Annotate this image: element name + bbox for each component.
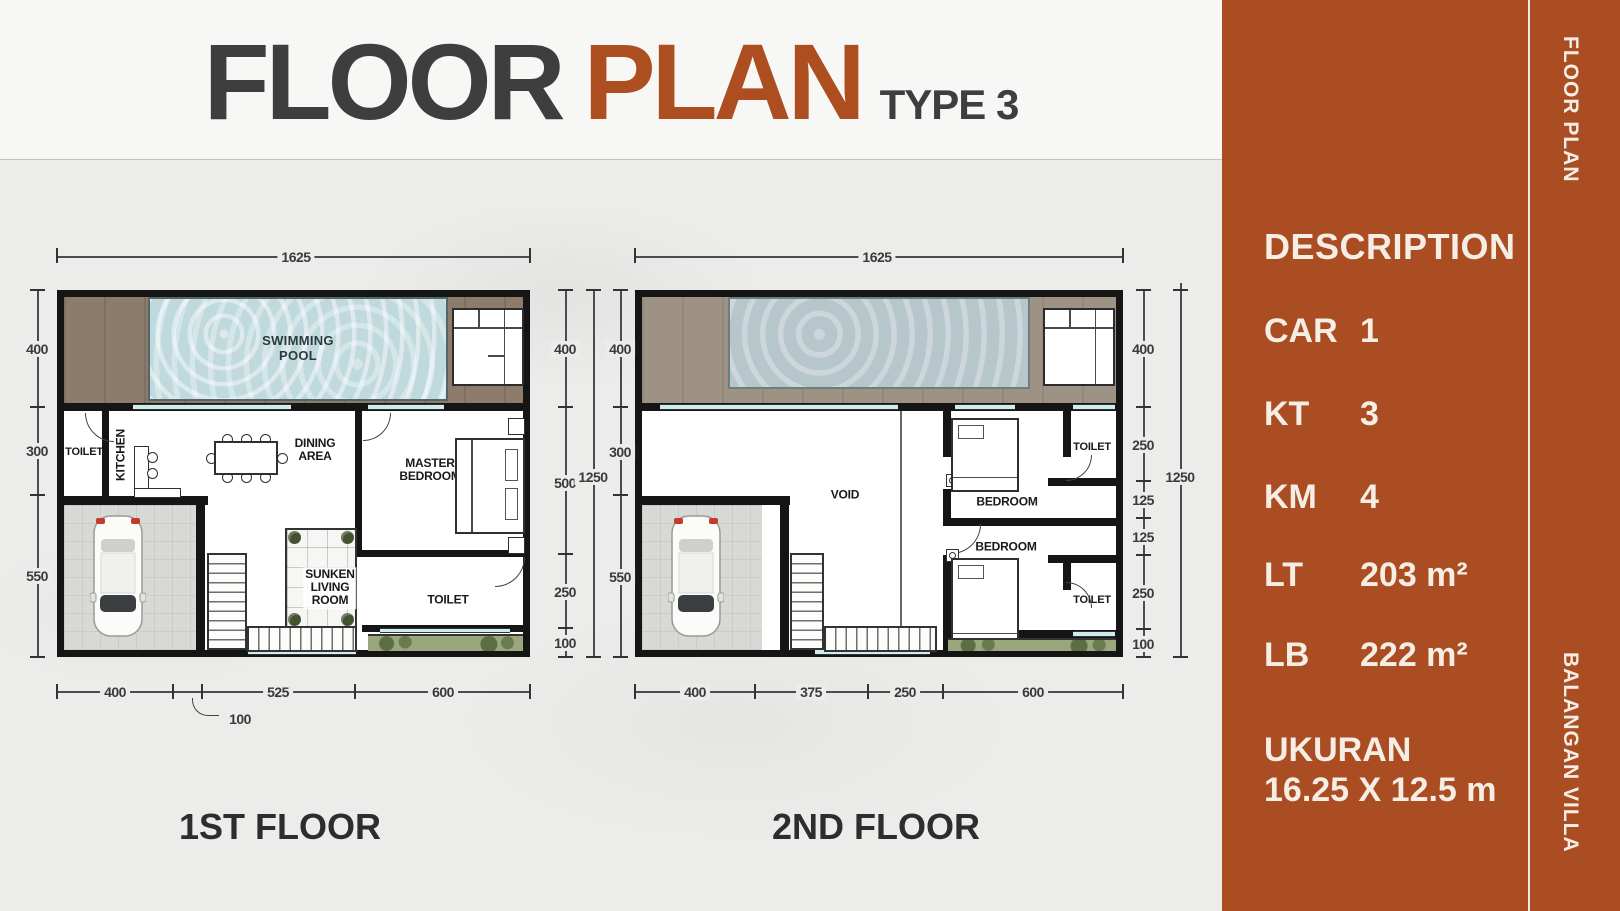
room-label-toilet: TOILET — [427, 593, 468, 606]
bed-fold-line — [953, 477, 1017, 479]
dim-tick — [1122, 248, 1124, 263]
spec-row-kt: KT 3 — [1264, 395, 1524, 435]
dim-label: 250 — [1128, 437, 1158, 453]
dim-tick — [529, 684, 531, 699]
dim-label: 400 — [550, 341, 580, 357]
dim-tick — [586, 289, 601, 291]
plan2-pool-below — [728, 297, 1030, 389]
bed-pillow — [505, 449, 518, 481]
dining-chair — [277, 453, 288, 464]
dim-tick — [942, 684, 944, 699]
dim-label: 1250 — [1161, 469, 1198, 485]
dim-tick — [56, 248, 58, 263]
window-sill — [133, 404, 291, 410]
header: FLOOR PLAN TYPE 3 — [0, 0, 1222, 160]
room-label-bedroom: BEDROOM — [976, 495, 1037, 508]
bed-pillow — [958, 565, 984, 579]
bed — [951, 558, 1019, 648]
dim-tick — [558, 553, 573, 555]
bed-pillow — [505, 488, 518, 520]
room-label-dining: DINING AREA — [295, 437, 336, 463]
dim-tick — [613, 289, 628, 291]
dim-label: 400 — [22, 341, 52, 357]
dim-label: 100 — [225, 711, 255, 727]
dim-label: 1250 — [574, 469, 611, 485]
kitchen-counter — [134, 488, 181, 498]
room-label-void: VOID — [831, 488, 860, 501]
sofa-line — [1045, 327, 1113, 329]
dim-label: 525 — [263, 684, 293, 700]
window-sill — [660, 404, 898, 410]
window-sill — [1073, 404, 1115, 410]
dim-label: 250 — [550, 584, 580, 600]
plant — [341, 531, 354, 544]
dim-tick — [529, 248, 531, 263]
planter-strip — [368, 634, 523, 651]
dim-tick — [1136, 656, 1151, 658]
dim-tick — [1136, 406, 1151, 408]
dim-tick — [30, 289, 45, 291]
dim-label: 400 — [680, 684, 710, 700]
dim-label: 250 — [890, 684, 920, 700]
sofa-line — [454, 327, 522, 329]
dim-tick — [1136, 517, 1151, 519]
dining-table — [214, 441, 278, 475]
dim-tick — [558, 656, 573, 658]
wall — [1063, 411, 1071, 457]
wall — [1048, 555, 1123, 563]
car-top-view — [668, 513, 724, 639]
plan1-swimming-pool: SWIMMING POOL — [148, 297, 448, 401]
page-title: FLOOR — [204, 28, 562, 136]
dim-tick — [634, 248, 636, 263]
dim-tick — [1136, 480, 1151, 482]
room-label-bedroom: BEDROOM — [975, 540, 1036, 553]
dim-label: 125 — [1128, 492, 1158, 508]
spec-row-km: KM 4 — [1264, 478, 1524, 518]
sofa — [452, 308, 524, 386]
dim-label: 1625 — [858, 249, 895, 265]
planter-strip — [948, 638, 1116, 651]
dim-tick — [172, 684, 174, 699]
window-sill — [368, 404, 444, 410]
dim-label: 250 — [1128, 585, 1158, 601]
dim-tick — [1122, 684, 1124, 699]
dim-tick — [1136, 554, 1151, 556]
wall — [780, 496, 789, 652]
dim-label: 300 — [605, 444, 635, 460]
plant — [288, 531, 301, 544]
dim-label: 375 — [796, 684, 826, 700]
page-title-type: TYPE 3 — [880, 81, 1019, 129]
spec-label: KT — [1264, 395, 1309, 433]
spec-row-lt: LT 203 m² — [1264, 556, 1524, 596]
plan2-caption: 2ND FLOOR — [772, 806, 980, 848]
dim-label: 100 — [550, 635, 580, 651]
dim-label: 600 — [1018, 684, 1048, 700]
staircase — [790, 553, 824, 650]
plan1-caption: 1ST FLOOR — [179, 806, 381, 848]
dim-tick — [558, 406, 573, 408]
room-label-toilet: TOILET — [65, 446, 103, 458]
wall — [943, 411, 951, 457]
spec-row-car: CAR 1 — [1264, 312, 1524, 352]
pool-label: SWIMMING POOL — [262, 334, 334, 364]
dim-label: 1625 — [277, 249, 314, 265]
dim-label: 100 — [1128, 636, 1158, 652]
spec-value: 222 m² — [1360, 636, 1468, 675]
void-railing — [900, 411, 902, 628]
dim-tick — [201, 684, 203, 699]
dim-tick — [1136, 628, 1151, 630]
dim-tick — [634, 684, 636, 699]
dim-tick — [613, 494, 628, 496]
spec-label: CAR — [1264, 312, 1338, 350]
spec-value: 4 — [1360, 478, 1379, 517]
dim-tick — [30, 656, 45, 658]
dim-tick — [30, 406, 45, 408]
sofa-line — [488, 355, 505, 357]
dim-tick — [613, 406, 628, 408]
size-label: UKURAN — [1264, 730, 1497, 770]
dim-tick — [754, 684, 756, 699]
spec-row-lb: LB 222 m² — [1264, 636, 1524, 676]
vertical-text-floor-plan: FLOOR PLAN — [1558, 36, 1582, 183]
dim-label: 400 — [100, 684, 130, 700]
sofa — [1043, 308, 1115, 386]
car-top-view — [90, 513, 146, 639]
wall — [1048, 478, 1123, 486]
spec-value: 203 m² — [1360, 556, 1468, 595]
dim-leader-line — [192, 698, 219, 716]
wall — [196, 496, 205, 652]
spec-label: KM — [1264, 478, 1317, 516]
dim-label: 400 — [605, 341, 635, 357]
dim-tick — [558, 627, 573, 629]
wall — [640, 496, 790, 505]
dim-tick — [613, 656, 628, 658]
spec-value: 3 — [1360, 395, 1379, 434]
vertical-text-balangan-villa: BALANGAN VILLA — [1558, 652, 1582, 853]
kitchen-fixture — [147, 468, 158, 479]
sofa-line — [478, 310, 480, 327]
sidebar-heading: DESCRIPTION — [1264, 226, 1516, 268]
wall — [355, 550, 530, 557]
dim-tick — [56, 684, 58, 699]
size-block: UKURAN 16.25 X 12.5 m — [1264, 730, 1497, 810]
dim-tick — [354, 684, 356, 699]
staircase — [824, 626, 937, 652]
sidebar: DESCRIPTION CAR 1 KT 3 KM 4 LT 203 m² LB… — [1222, 0, 1620, 911]
dim-label: 400 — [1128, 341, 1158, 357]
dim-label: 300 — [22, 443, 52, 459]
nightstand — [508, 537, 525, 554]
master-bed — [455, 438, 525, 534]
dim-label: 125 — [1128, 529, 1158, 545]
staircase — [247, 626, 357, 652]
dim-tick — [558, 289, 573, 291]
page-title-accent: PLAN — [584, 28, 862, 136]
dim-tick — [586, 656, 601, 658]
dim-tick — [867, 684, 869, 699]
window-sill — [1073, 631, 1115, 637]
floor-plan-poster: FLOOR PLAN TYPE 3 SWIMMING POOL TOILET K… — [0, 0, 1620, 911]
plant — [341, 613, 354, 626]
bed-pillow — [958, 425, 984, 439]
dim-tick — [30, 494, 45, 496]
dim-label: 550 — [22, 568, 52, 584]
staircase — [207, 553, 247, 650]
plant — [288, 613, 301, 626]
sidebar-divider-line — [1528, 0, 1530, 911]
spec-value: 1 — [1360, 312, 1379, 351]
kitchen-fixture — [147, 452, 158, 463]
dim-tick — [1173, 289, 1188, 291]
window-sill — [955, 404, 1015, 410]
window-sill — [380, 628, 510, 633]
sofa-line — [1069, 310, 1071, 327]
nightstand — [508, 418, 525, 435]
dim-label: 600 — [428, 684, 458, 700]
dim-label: 550 — [605, 569, 635, 585]
room-label-master-bedroom: MASTER BEDROOM — [399, 457, 460, 483]
bed-fold-line — [953, 633, 1017, 635]
bed-fold-line — [471, 440, 473, 532]
size-value: 16.25 X 12.5 m — [1264, 770, 1497, 810]
dim-tick — [1136, 289, 1151, 291]
bed — [951, 418, 1019, 492]
dim-tick — [1173, 656, 1188, 658]
room-label-kitchen: KITCHEN — [114, 429, 127, 481]
room-label-sunken-living: SUNKEN LIVING ROOM — [303, 567, 356, 609]
sofa-line — [1095, 310, 1097, 384]
wall — [62, 403, 523, 411]
spec-label: LB — [1264, 636, 1309, 674]
spec-label: LT — [1264, 556, 1303, 594]
room-label-toilet: TOILET — [1073, 441, 1111, 453]
sofa-line — [504, 310, 506, 384]
